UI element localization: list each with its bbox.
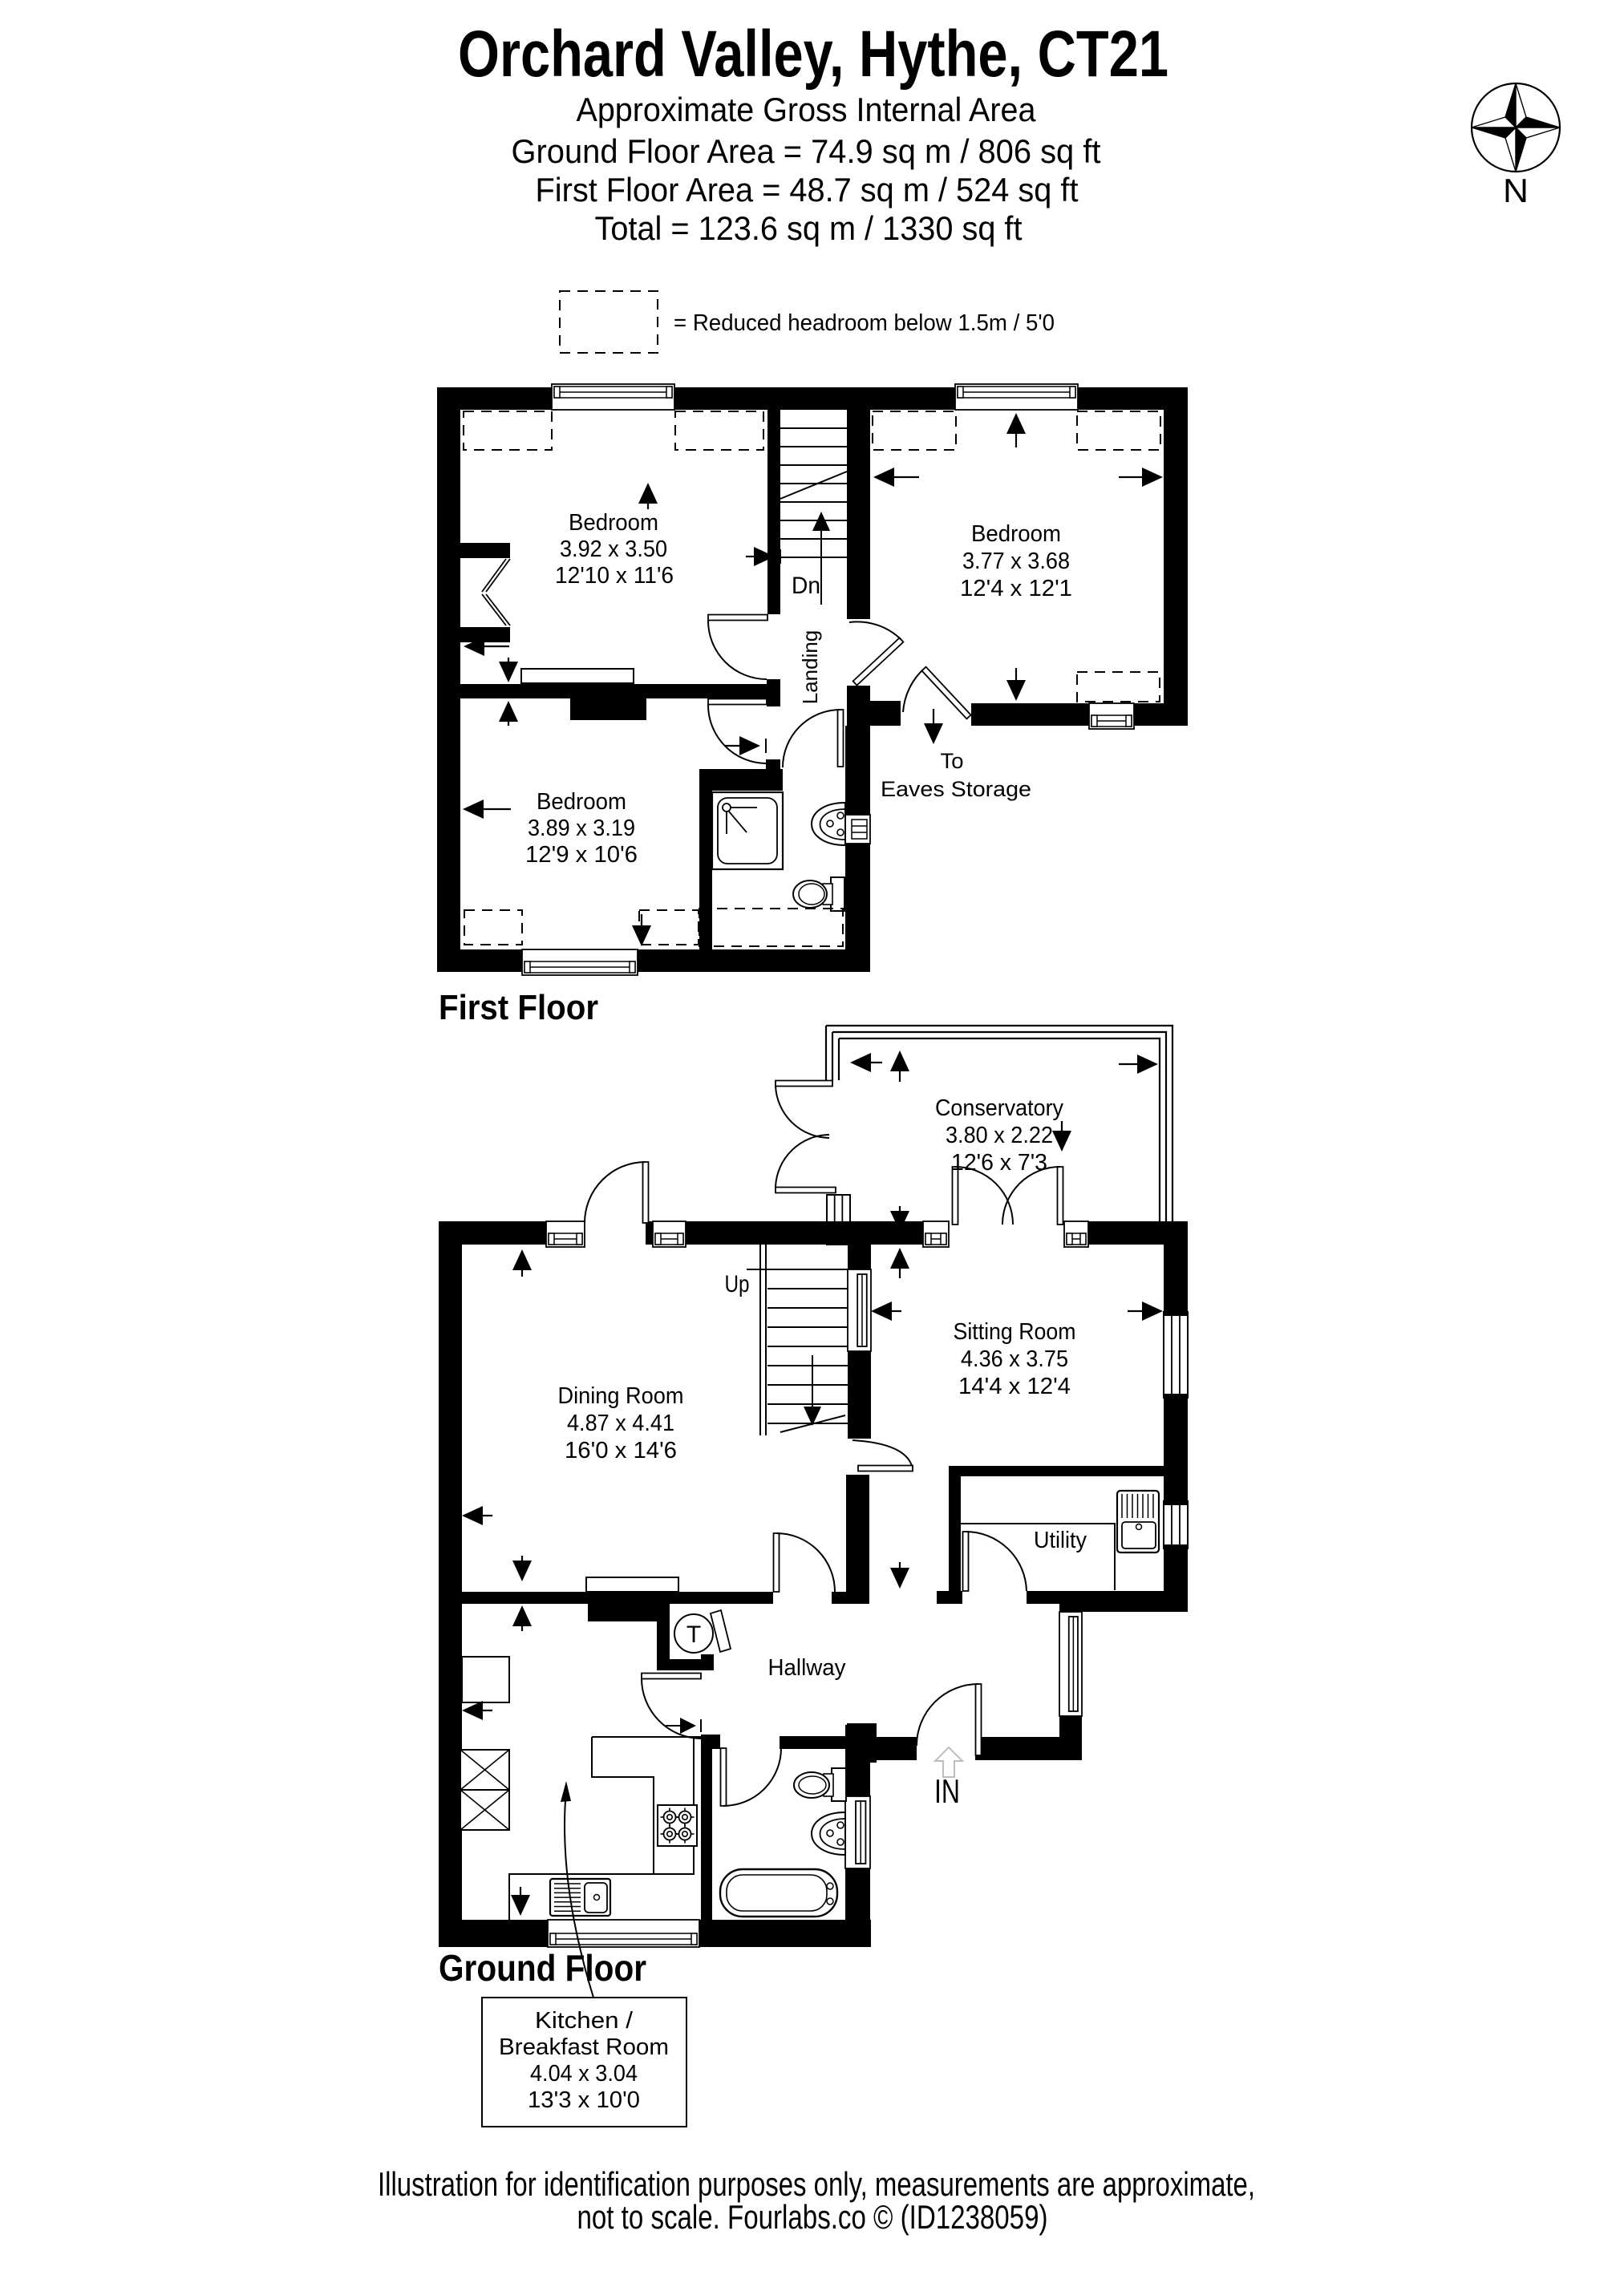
svg-text:Up: Up	[725, 1271, 750, 1297]
svg-text:Hallway: Hallway	[768, 1655, 846, 1681]
svg-text:14'4 x 12'4: 14'4 x 12'4	[958, 1374, 1071, 1399]
svg-text:Bedroom: Bedroom	[569, 510, 658, 536]
svg-text:Dn: Dn	[792, 573, 820, 599]
svg-text:Eaves Storage: Eaves Storage	[881, 777, 1031, 801]
svg-text:First Floor: First Floor	[439, 988, 598, 1027]
svg-text:Kitchen /: Kitchen /	[535, 2008, 634, 2034]
svg-text:12'6 x 7'3: 12'6 x 7'3	[951, 1150, 1047, 1176]
svg-text:Conservatory: Conservatory	[935, 1095, 1063, 1121]
svg-text:3.80 x 2.22: 3.80 x 2.22	[946, 1123, 1053, 1148]
svg-text:12'9 x 10'6: 12'9 x 10'6	[525, 842, 638, 868]
svg-text:13'3 x 10'0: 13'3 x 10'0	[528, 2087, 640, 2113]
svg-text:Bedroom: Bedroom	[971, 521, 1061, 547]
svg-text:12'10 x 11'6: 12'10 x 11'6	[555, 563, 674, 589]
svg-text:16'0 x 14'6: 16'0 x 14'6	[565, 1438, 677, 1463]
svg-text:Utility: Utility	[1034, 1528, 1087, 1553]
svg-text:Total = 123.6 sq m / 1330 sq f: Total = 123.6 sq m / 1330 sq ft	[595, 209, 1023, 247]
svg-text:Dining Room: Dining Room	[558, 1383, 684, 1409]
svg-text:4.87 x 4.41: 4.87 x 4.41	[567, 1411, 674, 1436]
svg-text:T: T	[686, 1621, 701, 1648]
svg-text:N: N	[1503, 172, 1529, 209]
svg-text:Orchard Valley, Hythe, CT21: Orchard Valley, Hythe, CT21	[458, 18, 1168, 91]
svg-text:First Floor Area = 48.7 sq m /: First Floor Area = 48.7 sq m / 524 sq ft	[536, 171, 1079, 208]
svg-text:3.92 x 3.50: 3.92 x 3.50	[560, 536, 667, 562]
svg-text:Ground Floor Area = 74.9 sq m: Ground Floor Area = 74.9 sq m / 806 sq f…	[512, 132, 1101, 170]
svg-text:4.36 x 3.75: 4.36 x 3.75	[961, 1346, 1068, 1372]
svg-text:Sitting Room: Sitting Room	[954, 1319, 1076, 1345]
svg-text:not to scale. Fourlabs.co © (I: not to scale. Fourlabs.co © (ID1238059)	[577, 2198, 1048, 2236]
svg-text:Approximate Gross Internal Are: Approximate Gross Internal Area	[577, 91, 1037, 128]
svg-text:Illustration for identificatio: Illustration for identification purposes…	[378, 2165, 1255, 2203]
svg-text:Bedroom: Bedroom	[537, 789, 626, 815]
svg-text:3.89 x 3.19: 3.89 x 3.19	[528, 816, 635, 841]
svg-text:= Reduced headroom below 1.5m: = Reduced headroom below 1.5m / 5'0	[674, 310, 1055, 336]
svg-text:Breakfast Room: Breakfast Room	[499, 2034, 669, 2060]
svg-text:To: To	[941, 749, 964, 773]
svg-text:Ground Floor: Ground Floor	[439, 1947, 646, 1989]
svg-text:4.04 x 3.04: 4.04 x 3.04	[530, 2061, 638, 2087]
svg-text:3.77 x 3.68: 3.77 x 3.68	[962, 549, 1070, 574]
svg-text:IN: IN	[934, 1772, 960, 1810]
svg-text:12'4 x 12'1: 12'4 x 12'1	[960, 576, 1072, 601]
svg-text:Landing: Landing	[798, 630, 822, 705]
